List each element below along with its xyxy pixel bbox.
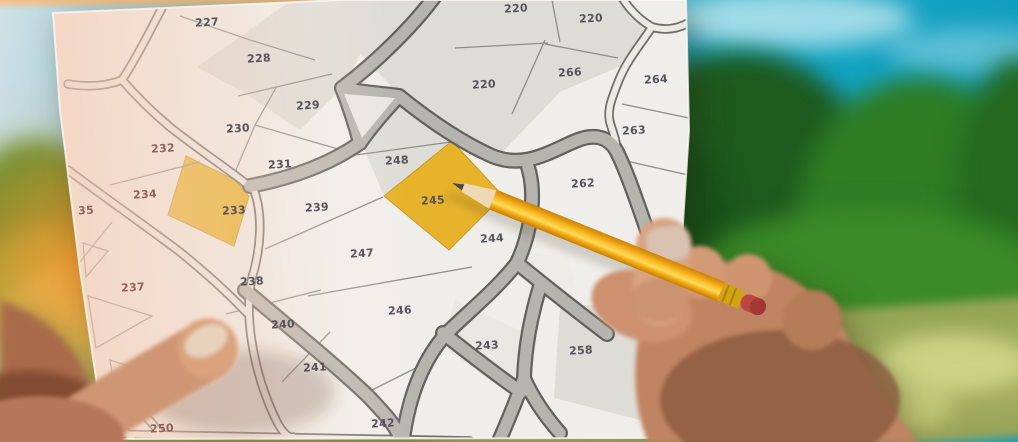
- parcel-label: 230: [226, 121, 251, 135]
- parcel-label: 233: [222, 203, 247, 217]
- parcel-label: 229: [296, 98, 321, 112]
- cadastral-map-photo: 2272282292302322312343523323924824522022…: [0, 0, 1018, 442]
- parcel-label: 238: [240, 274, 265, 288]
- parcel-label: 35: [78, 204, 95, 218]
- parcel-label: 264: [644, 72, 669, 86]
- parcel-label: 220: [579, 11, 604, 25]
- parcel-label: 234: [133, 187, 158, 201]
- parcel-label: 228: [247, 51, 272, 65]
- parcel-label: 220: [504, 1, 529, 15]
- parcel-label: 239: [305, 200, 330, 214]
- parcel-label: 245: [421, 193, 446, 207]
- parcel-label: 227: [195, 15, 220, 29]
- parcel-label: 231: [268, 157, 293, 171]
- parcel-label: 250: [150, 421, 175, 435]
- parcel-label: 246: [388, 303, 413, 317]
- parcel-label: 247: [350, 246, 375, 260]
- parcel-label: 243: [475, 338, 500, 352]
- parcel-label: 258: [569, 343, 594, 357]
- parcel-label: 242: [371, 416, 396, 430]
- parcel-label: 263: [622, 123, 647, 137]
- map-scene: 2272282292302322312343523323924824522022…: [0, 0, 1018, 442]
- parcel-label: 266: [558, 65, 583, 79]
- parcel-label: 248: [385, 153, 410, 167]
- parcel-label: 262: [571, 176, 596, 190]
- parcel-label: 237: [121, 280, 146, 294]
- parcel-label: 220: [472, 77, 497, 91]
- parcel-label: 240: [271, 317, 296, 331]
- parcel-label: 232: [151, 141, 176, 155]
- parcel-label: 244: [480, 231, 505, 245]
